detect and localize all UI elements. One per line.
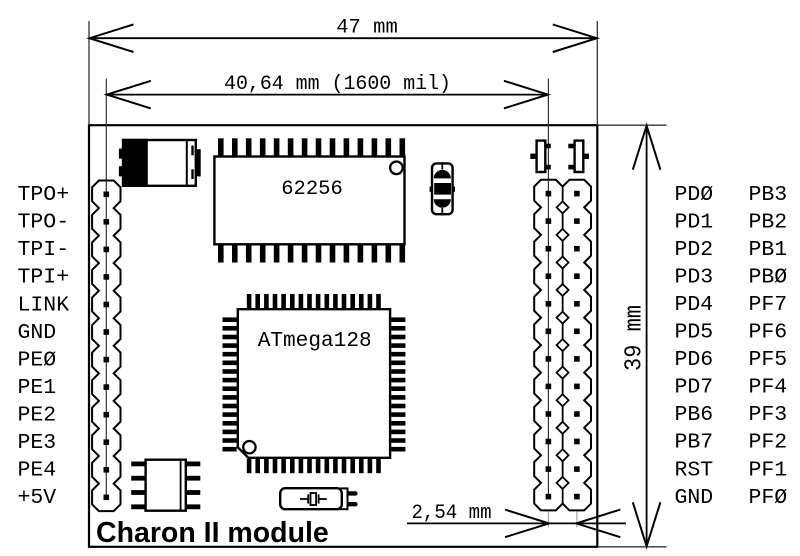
svg-text:PB7: PB7	[675, 431, 714, 455]
svg-text:GND: GND	[18, 321, 57, 345]
svg-text:+5V: +5V	[18, 486, 57, 510]
svg-text:40,64 mm (1600 mil): 40,64 mm (1600 mil)	[224, 73, 451, 96]
svg-text:39 mm: 39 mm	[622, 305, 649, 371]
svg-text:GND: GND	[675, 486, 714, 510]
svg-text:PBØ: PBØ	[749, 265, 788, 289]
svg-text:PB3: PB3	[749, 183, 788, 207]
svg-text:PE1: PE1	[18, 376, 57, 400]
svg-text:PE4: PE4	[18, 459, 57, 483]
svg-text:PE3: PE3	[18, 431, 57, 455]
svg-text:PD6: PD6	[675, 348, 714, 372]
svg-text:2,54 mm: 2,54 mm	[412, 502, 492, 525]
svg-text:PF7: PF7	[749, 293, 788, 317]
svg-text:LINK: LINK	[18, 293, 70, 317]
svg-text:47 mm: 47 mm	[336, 17, 398, 40]
svg-text:PF2: PF2	[749, 431, 788, 455]
svg-text:PE2: PE2	[18, 404, 57, 428]
svg-text:Charon II module: Charon II module	[96, 517, 329, 549]
svg-text:PD5: PD5	[675, 321, 714, 345]
svg-text:PD3: PD3	[675, 265, 714, 289]
svg-text:PB1: PB1	[749, 238, 788, 262]
svg-text:TPI+: TPI+	[18, 266, 70, 290]
svg-text:ATmega128: ATmega128	[258, 329, 372, 353]
svg-text:PF1: PF1	[749, 458, 788, 482]
svg-text:TPO+: TPO+	[18, 183, 70, 207]
svg-text:62256: 62256	[281, 178, 343, 201]
svg-text:PF5: PF5	[749, 348, 788, 372]
svg-text:PB2: PB2	[749, 210, 788, 234]
svg-text:PEØ: PEØ	[18, 348, 57, 372]
svg-text:PD2: PD2	[675, 238, 714, 262]
svg-text:RST: RST	[675, 458, 714, 482]
svg-text:PD7: PD7	[675, 376, 714, 400]
svg-text:PD4: PD4	[675, 293, 714, 317]
svg-text:PFØ: PFØ	[749, 486, 788, 510]
svg-text:PF4: PF4	[749, 376, 788, 400]
svg-text:PF6: PF6	[749, 321, 788, 345]
svg-text:PD1: PD1	[675, 210, 714, 234]
svg-text:TPO-: TPO-	[18, 211, 70, 235]
svg-text:PDØ: PDØ	[675, 183, 714, 207]
svg-text:PB6: PB6	[675, 403, 714, 427]
svg-text:TPI-: TPI-	[18, 238, 70, 262]
svg-text:PF3: PF3	[749, 403, 788, 427]
